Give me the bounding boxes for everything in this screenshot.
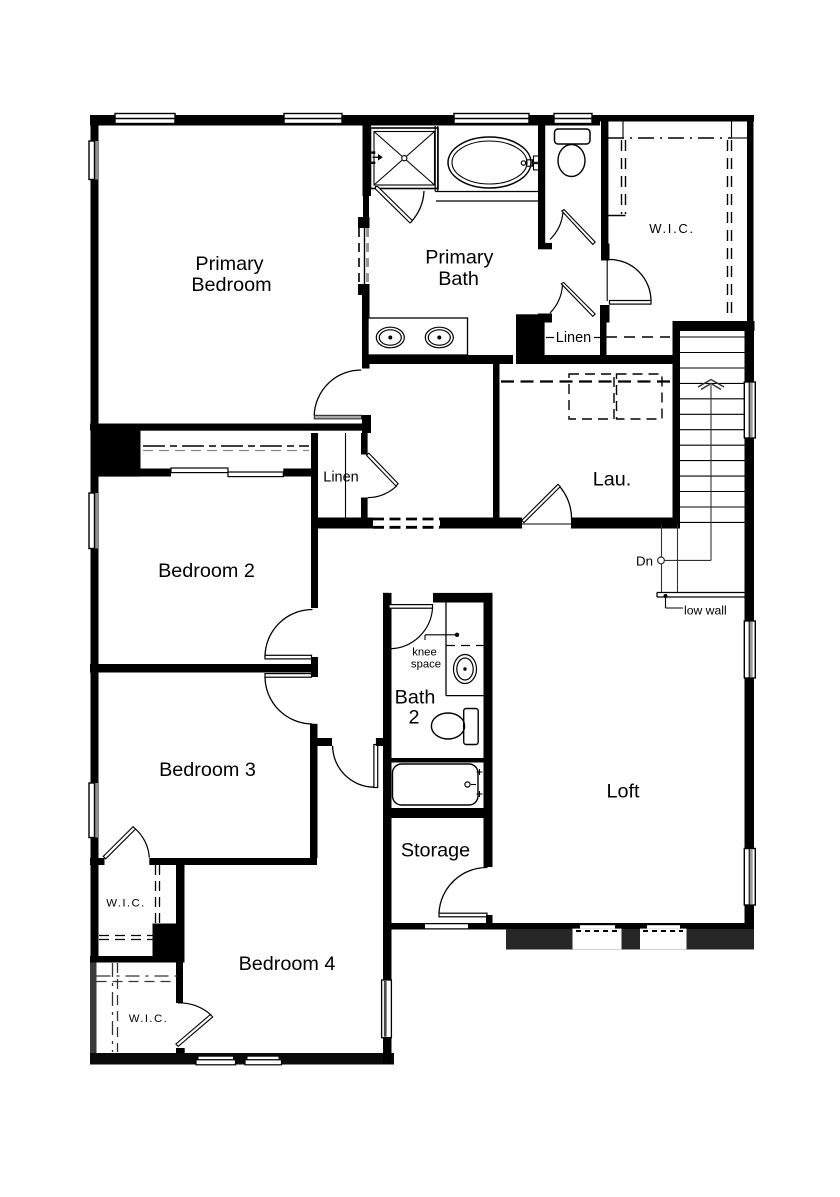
svg-text:W.I.C.: W.I.C. [106,898,145,910]
svg-text:Bedroom 2: Bedroom 2 [158,560,255,582]
svg-text:Primary: Primary [195,253,263,275]
svg-text:Bedroom 3: Bedroom 3 [159,759,256,781]
svg-text:knee: knee [412,647,437,659]
svg-text:Dn: Dn [636,554,653,569]
svg-text:Lau.: Lau. [593,469,632,491]
svg-text:low wall: low wall [684,604,727,618]
svg-text:Linen: Linen [556,330,591,346]
svg-text:Bath: Bath [438,268,479,290]
svg-text:Bedroom: Bedroom [191,274,271,296]
svg-text:Storage: Storage [401,840,470,862]
svg-text:W.I.C.: W.I.C. [129,1013,168,1025]
svg-text:Bedroom 4: Bedroom 4 [239,953,336,975]
svg-text:Loft: Loft [607,781,640,803]
svg-text:Primary: Primary [425,247,493,269]
svg-text:2: 2 [408,706,419,728]
svg-text:space: space [411,659,441,671]
svg-text:W.I.C.: W.I.C. [649,221,695,236]
svg-text:Linen: Linen [323,470,358,486]
svg-text:Bath: Bath [395,687,436,709]
